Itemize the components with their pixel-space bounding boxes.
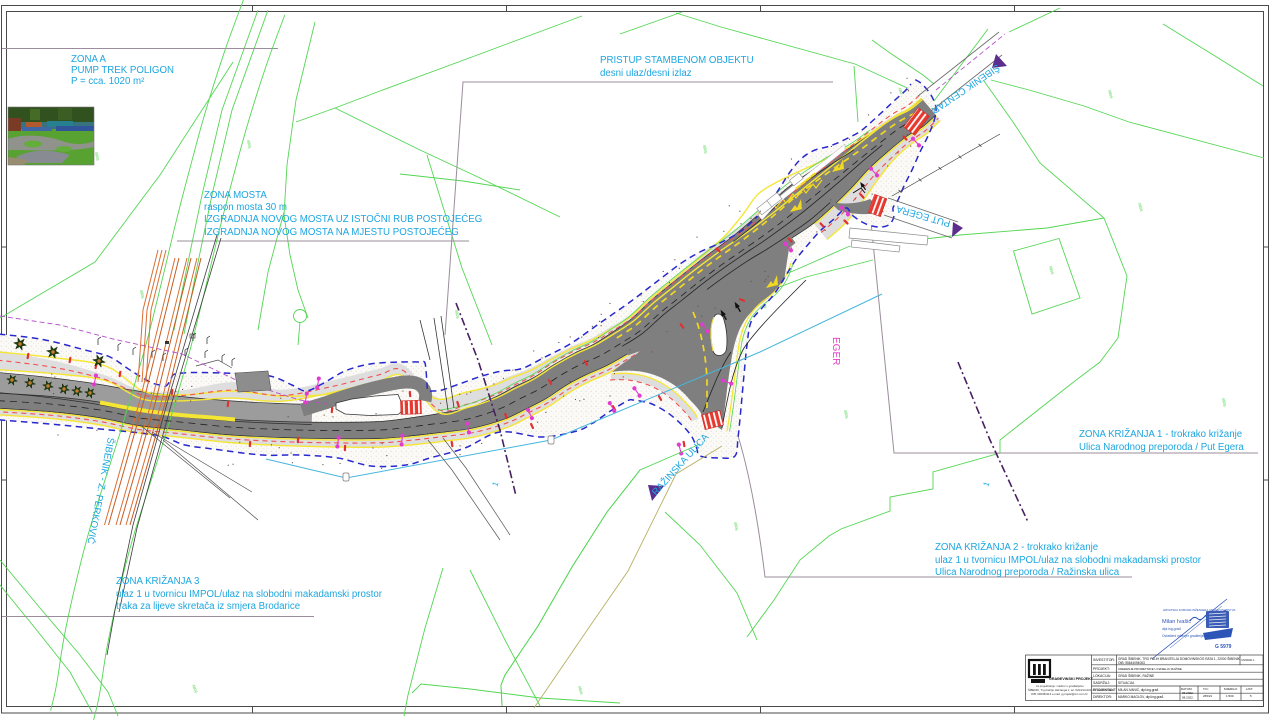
svg-text:IZGRADNJA NOVOG MOSTA NA MJEST: IZGRADNJA NOVOG MOSTA NA MJESTU POSTOJEĆ… bbox=[204, 227, 459, 238]
svg-text:ZONA MOSTA: ZONA MOSTA bbox=[204, 190, 267, 201]
svg-text:OIB: 55644094063: OIB: 55644094063 bbox=[1118, 661, 1145, 665]
svg-text:ZONA KRIŽANJA 2 - trokrako kri: ZONA KRIŽANJA 2 - trokrako križanje bbox=[935, 542, 1098, 553]
svg-text:UREĐENJE PROMETNICE U NASELJU: UREĐENJE PROMETNICE U NASELJU RAŽINE bbox=[1118, 666, 1182, 671]
svg-text:PRISTUP STAMBENOM OBJEKTU: PRISTUP STAMBENOM OBJEKTU bbox=[600, 55, 754, 66]
svg-text:PUMP TREK POLIGON: PUMP TREK POLIGON bbox=[71, 65, 174, 76]
svg-text:MILAN IVANIĆ, dipl.ing.građ.: MILAN IVANIĆ, dipl.ing.građ. bbox=[1118, 687, 1159, 692]
svg-text:Ulica Narodnog preporoda / Raž: Ulica Narodnog preporoda / Ražinska ulic… bbox=[935, 567, 1120, 578]
svg-text:DIREKTOR:: DIREKTOR: bbox=[1093, 695, 1112, 699]
svg-text:ZONA A: ZONA A bbox=[71, 54, 107, 65]
svg-text:Ulica Narodnog preporoda / Put: Ulica Narodnog preporoda / Put Egera bbox=[1079, 442, 1244, 453]
svg-text:IZGRADNJA NOVOG MOSTA UZ ISTOČ: IZGRADNJA NOVOG MOSTA UZ ISTOČNI RUB POS… bbox=[204, 214, 482, 225]
svg-text:EGER: EGER bbox=[830, 337, 841, 365]
svg-text:ulaz 1 u tvornicu IMPOL/ulaz n: ulaz 1 u tvornicu IMPOL/ulaz na slobodni… bbox=[116, 589, 383, 600]
svg-text:OIB: 090383113 e-mail: g.proje: OIB: 090383113 e-mail: g.projekt@si.t-co… bbox=[1031, 692, 1088, 696]
svg-text:INVESTITOR:: INVESTITOR: bbox=[1093, 658, 1115, 662]
svg-text:08.2022.: 08.2022. bbox=[1182, 696, 1194, 700]
svg-text:GRAD ŠIBENIK, RAŽINE: GRAD ŠIBENIK, RAŽINE bbox=[1118, 673, 1154, 678]
svg-text:ulaz 1 u tvornicu IMPOL/ulaz n: ulaz 1 u tvornicu IMPOL/ulaz na slobodni… bbox=[935, 555, 1202, 566]
svg-text:PROJEKT:: PROJEKT: bbox=[1093, 667, 1110, 671]
svg-text:Ovlašteni inženjer graditeljst: Ovlašteni inženjer graditeljstva bbox=[1162, 634, 1208, 638]
svg-text:G 5979: G 5979 bbox=[1215, 644, 1232, 650]
svg-text:traka za lijeve skretača iz sm: traka za lijeve skretača iz smjera Broda… bbox=[116, 601, 300, 612]
svg-text:T.D.:: T.D.: bbox=[1203, 687, 1209, 691]
svg-text:LOKACIJA:: LOKACIJA: bbox=[1093, 674, 1111, 678]
svg-text:P = cca. 1020 m²: P = cca. 1020 m² bbox=[71, 76, 145, 87]
svg-text:raspon mosta 30 m: raspon mosta 30 m bbox=[204, 202, 287, 213]
svg-text:Milan Ivašić: Milan Ivašić bbox=[1162, 619, 1191, 625]
svg-text:LIST:: LIST: bbox=[1246, 687, 1253, 691]
svg-text:IZVADAK 1: IZVADAK 1 bbox=[1242, 658, 1256, 662]
svg-text:desni ulaz/desni izlaz: desni ulaz/desni izlaz bbox=[600, 68, 692, 79]
svg-text:ZONA KRIŽANJA 1 - trokrako kri: ZONA KRIŽANJA 1 - trokrako križanje bbox=[1079, 429, 1242, 440]
svg-text:265/21: 265/21 bbox=[1203, 694, 1213, 698]
svg-text:1:500: 1:500 bbox=[1226, 694, 1234, 698]
svg-text:MJERILO:: MJERILO: bbox=[1224, 687, 1238, 691]
svg-text:SADRŽAJ:: SADRŽAJ: bbox=[1093, 680, 1110, 685]
svg-text:dipl.ing.građ.: dipl.ing.građ. bbox=[1162, 627, 1181, 631]
svg-text:MARKO MAGLOV, dipl.ing.građ.: MARKO MAGLOV, dipl.ing.građ. bbox=[1118, 695, 1164, 699]
svg-text:PROJEKTANT:: PROJEKTANT: bbox=[1093, 688, 1117, 692]
svg-text:ZONA KRIŽANJA 3: ZONA KRIŽANJA 3 bbox=[116, 576, 199, 587]
svg-text:GRAĐEVINSKI PROJEKT: GRAĐEVINSKI PROJEKT bbox=[1049, 677, 1094, 681]
svg-text:05.2022.: 05.2022. bbox=[1182, 691, 1194, 695]
svg-text:SITUACIJA: SITUACIJA bbox=[1118, 681, 1135, 685]
